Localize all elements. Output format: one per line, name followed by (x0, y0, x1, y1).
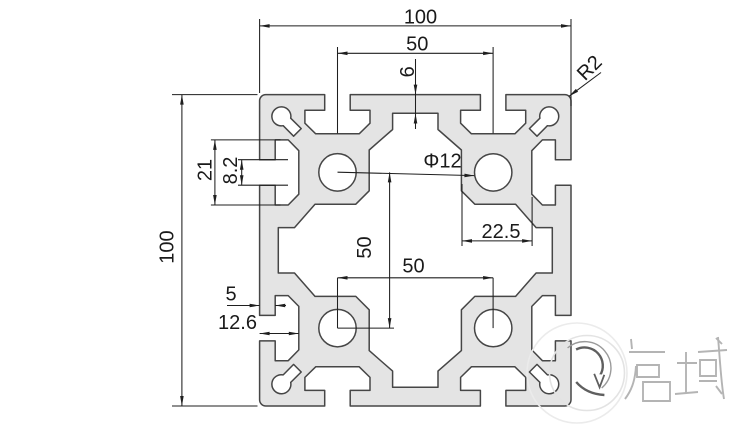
svg-text:50: 50 (402, 256, 424, 278)
svg-text:50: 50 (406, 33, 428, 55)
svg-text:8.2: 8.2 (220, 157, 242, 185)
svg-text:100: 100 (404, 6, 437, 28)
svg-text:22.5: 22.5 (482, 221, 521, 243)
svg-text:5: 5 (225, 284, 236, 306)
svg-text:21: 21 (195, 159, 217, 181)
svg-text:50: 50 (354, 236, 376, 258)
svg-text:Φ12: Φ12 (423, 151, 461, 173)
svg-text:100: 100 (157, 230, 179, 263)
svg-text:12.6: 12.6 (218, 312, 257, 334)
svg-text:6: 6 (397, 66, 419, 77)
